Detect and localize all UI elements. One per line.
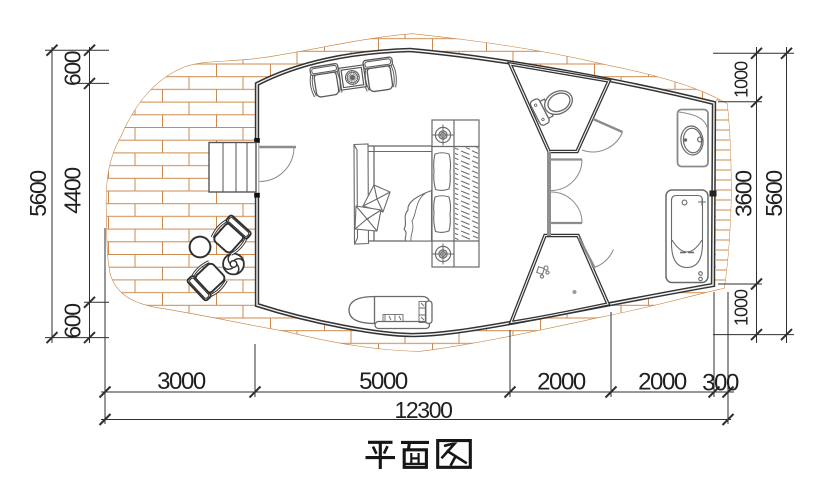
svg-text:12300: 12300 xyxy=(395,397,453,423)
svg-text:1000: 1000 xyxy=(732,61,752,98)
svg-text:2000: 2000 xyxy=(638,369,687,396)
svg-text:5600: 5600 xyxy=(25,171,51,217)
svg-text:600: 600 xyxy=(60,51,86,86)
svg-text:1000: 1000 xyxy=(732,289,752,326)
svg-text:300: 300 xyxy=(702,370,739,397)
svg-text:5600: 5600 xyxy=(761,171,787,217)
svg-text:5000: 5000 xyxy=(359,368,408,395)
svg-text:2000: 2000 xyxy=(537,369,586,396)
svg-text:4400: 4400 xyxy=(60,168,86,214)
svg-text:600: 600 xyxy=(60,304,86,339)
svg-text:3600: 3600 xyxy=(731,171,757,217)
svg-text:3000: 3000 xyxy=(157,368,206,395)
